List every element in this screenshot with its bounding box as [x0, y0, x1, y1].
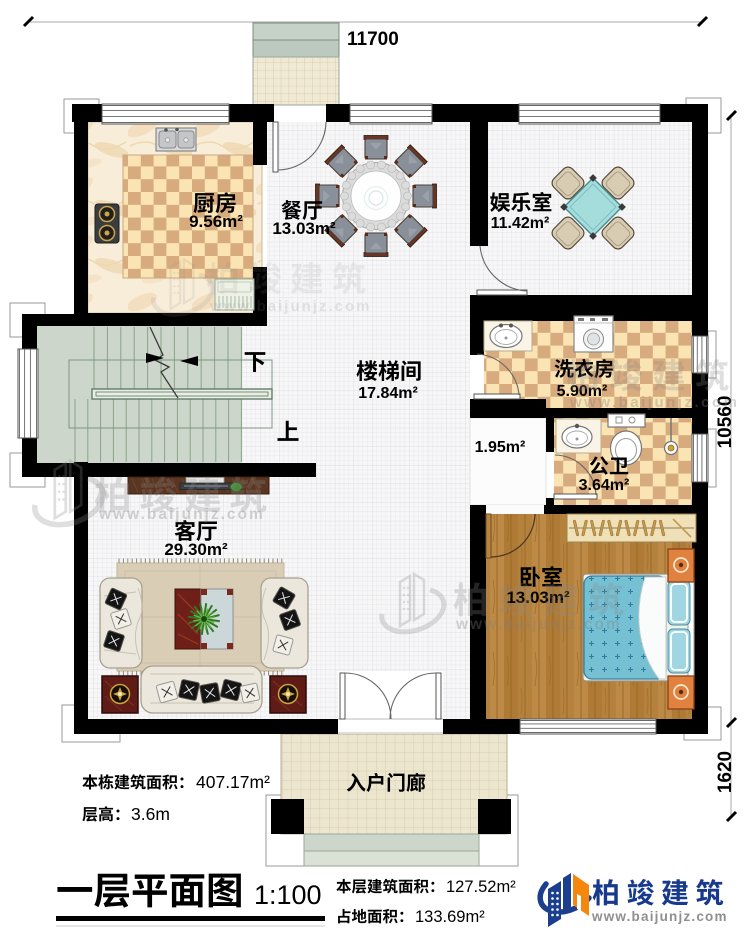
- svg-text:1:100: 1:100: [254, 880, 322, 910]
- svg-text:www.baijunjz.com: www.baijunjz.com: [98, 506, 265, 523]
- svg-text:www.baijunjz.com: www.baijunjz.com: [209, 298, 371, 315]
- svg-text:127.52m²: 127.52m²: [446, 878, 516, 896]
- svg-text:3.6m: 3.6m: [131, 804, 170, 824]
- svg-text:133.69m²: 133.69m²: [415, 908, 485, 926]
- svg-text:www.baijunjz.com: www.baijunjz.com: [569, 394, 739, 411]
- svg-text:11.42m²: 11.42m²: [491, 215, 550, 232]
- svg-text:11700: 11700: [347, 29, 399, 50]
- svg-text:13.03m²: 13.03m²: [272, 219, 336, 238]
- svg-text:17.84m²: 17.84m²: [358, 385, 418, 402]
- svg-text:www.baijunjz.com: www.baijunjz.com: [591, 909, 728, 924]
- svg-text:407.17m²: 407.17m²: [196, 772, 270, 792]
- svg-text:29.30m²: 29.30m²: [164, 540, 228, 559]
- svg-text:1620: 1620: [715, 751, 736, 793]
- svg-text:9.56m²: 9.56m²: [189, 212, 243, 231]
- svg-text:3.64m²: 3.64m²: [579, 477, 630, 494]
- svg-text:1.95m²: 1.95m²: [475, 439, 526, 456]
- svg-text:www.baijunjz.com: www.baijunjz.com: [455, 616, 622, 633]
